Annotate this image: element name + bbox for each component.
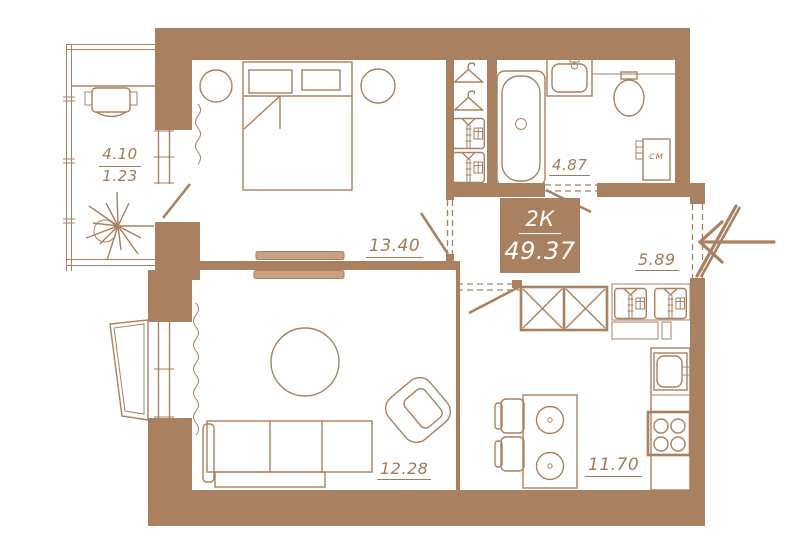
rug-icon [271, 328, 339, 396]
chair-icon [495, 437, 524, 471]
shirt-icon [655, 289, 687, 319]
bathtub-icon [497, 71, 545, 186]
plate-icon [537, 407, 564, 434]
washing-machine-label: см [643, 151, 670, 162]
dining-table-icon [523, 395, 577, 488]
chair-icon [495, 399, 524, 433]
bathroom-area-label: 4.87 [549, 156, 590, 176]
hallway-area-label: 5.89 [635, 250, 679, 271]
plant-icon [86, 192, 154, 260]
pouf-icon [361, 69, 395, 103]
walls [148, 28, 705, 526]
towel-rail-icon [636, 141, 643, 159]
hall-wardrobe-icon [612, 284, 690, 339]
stove-icon [648, 412, 690, 455]
living-window-icon [110, 320, 174, 420]
curtain-icon [194, 303, 199, 435]
kitchen-sink-icon [654, 353, 690, 390]
shirt-icon [453, 153, 485, 183]
floor-plan: 4.10 1.23 13.40 4.87 5.89 12.28 11.70 2К… [0, 0, 800, 539]
open-sash-icon [110, 320, 148, 420]
unit-summary-label: 2К 49.37 [500, 198, 580, 273]
entrance-arrow-icon [700, 222, 774, 262]
balcony-window-icon [154, 130, 174, 184]
bed-icon [243, 62, 352, 190]
pouf-icon [200, 70, 232, 102]
unit-total-area: 49.37 [504, 237, 575, 265]
curtain-icon [196, 104, 201, 164]
plate-icon [537, 453, 564, 480]
sliding-closet-icon [521, 287, 607, 330]
shirt-icon [453, 119, 485, 149]
shirt-icon [615, 289, 647, 319]
door-leaf-icons [163, 184, 740, 313]
toilet-icon [614, 72, 644, 116]
balcony-area-label: 4.10 1.23 [92, 145, 148, 186]
living-room-area-label: 12.28 [377, 459, 431, 480]
balcony-door-leaf-icon [163, 184, 190, 218]
sink-icon [547, 55, 592, 96]
armchair-icon [380, 372, 456, 448]
kitchen-area-label: 11.70 [585, 455, 642, 477]
kitchen-door-leaf-icon [469, 287, 519, 313]
balcony-table-icon [72, 86, 155, 117]
bedroom-door-leaf-icon [421, 213, 448, 254]
sofa-icon [203, 421, 372, 487]
bedroom-area-label: 13.40 [366, 236, 423, 258]
unit-type: 2К [519, 207, 560, 234]
wardrobe-hangers-icon [455, 63, 483, 110]
